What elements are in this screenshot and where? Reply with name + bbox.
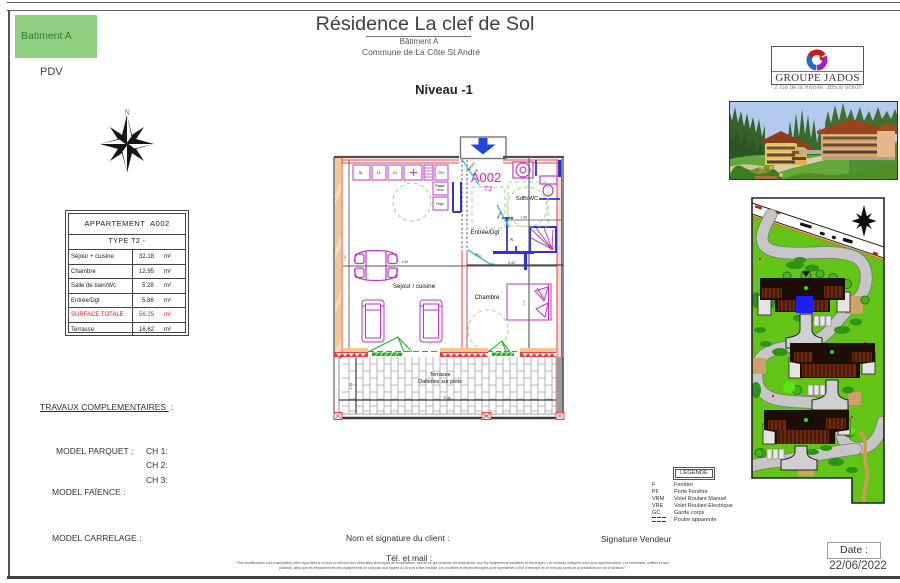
svg-text:Terrasse: Terrasse [429,372,450,378]
svg-text:Séjour / cuisine: Séjour / cuisine [393,283,436,290]
svg-text:Dallettes sur plots: Dallettes sur plots [418,379,462,385]
svg-text:1.86: 1.86 [521,216,527,220]
svg-text:2.03: 2.03 [349,383,353,390]
svg-text:LV: LV [393,171,398,175]
svg-text:SL: SL [359,171,363,175]
svg-text:3.42: 3.42 [508,260,517,265]
svg-text:CH: CH [438,171,444,175]
svg-text:8.04: 8.04 [444,396,451,400]
svg-text:T2: T2 [484,184,493,193]
svg-text:Frigo: Frigo [436,202,443,206]
svg-text:Entrée/Dgt: Entrée/Dgt [471,230,500,236]
svg-text:LL: LL [377,171,381,175]
svg-text:4.61: 4.61 [402,260,409,264]
svg-text:PL: PL [510,238,514,242]
svg-text:SdB/WC: SdB/WC [516,196,538,202]
svg-text:7.10: 7.10 [343,255,347,262]
svg-text:+four: +four [436,188,444,192]
svg-text:Chambre: Chambre [475,295,500,301]
svg-text:3.10: 3.10 [522,300,526,306]
